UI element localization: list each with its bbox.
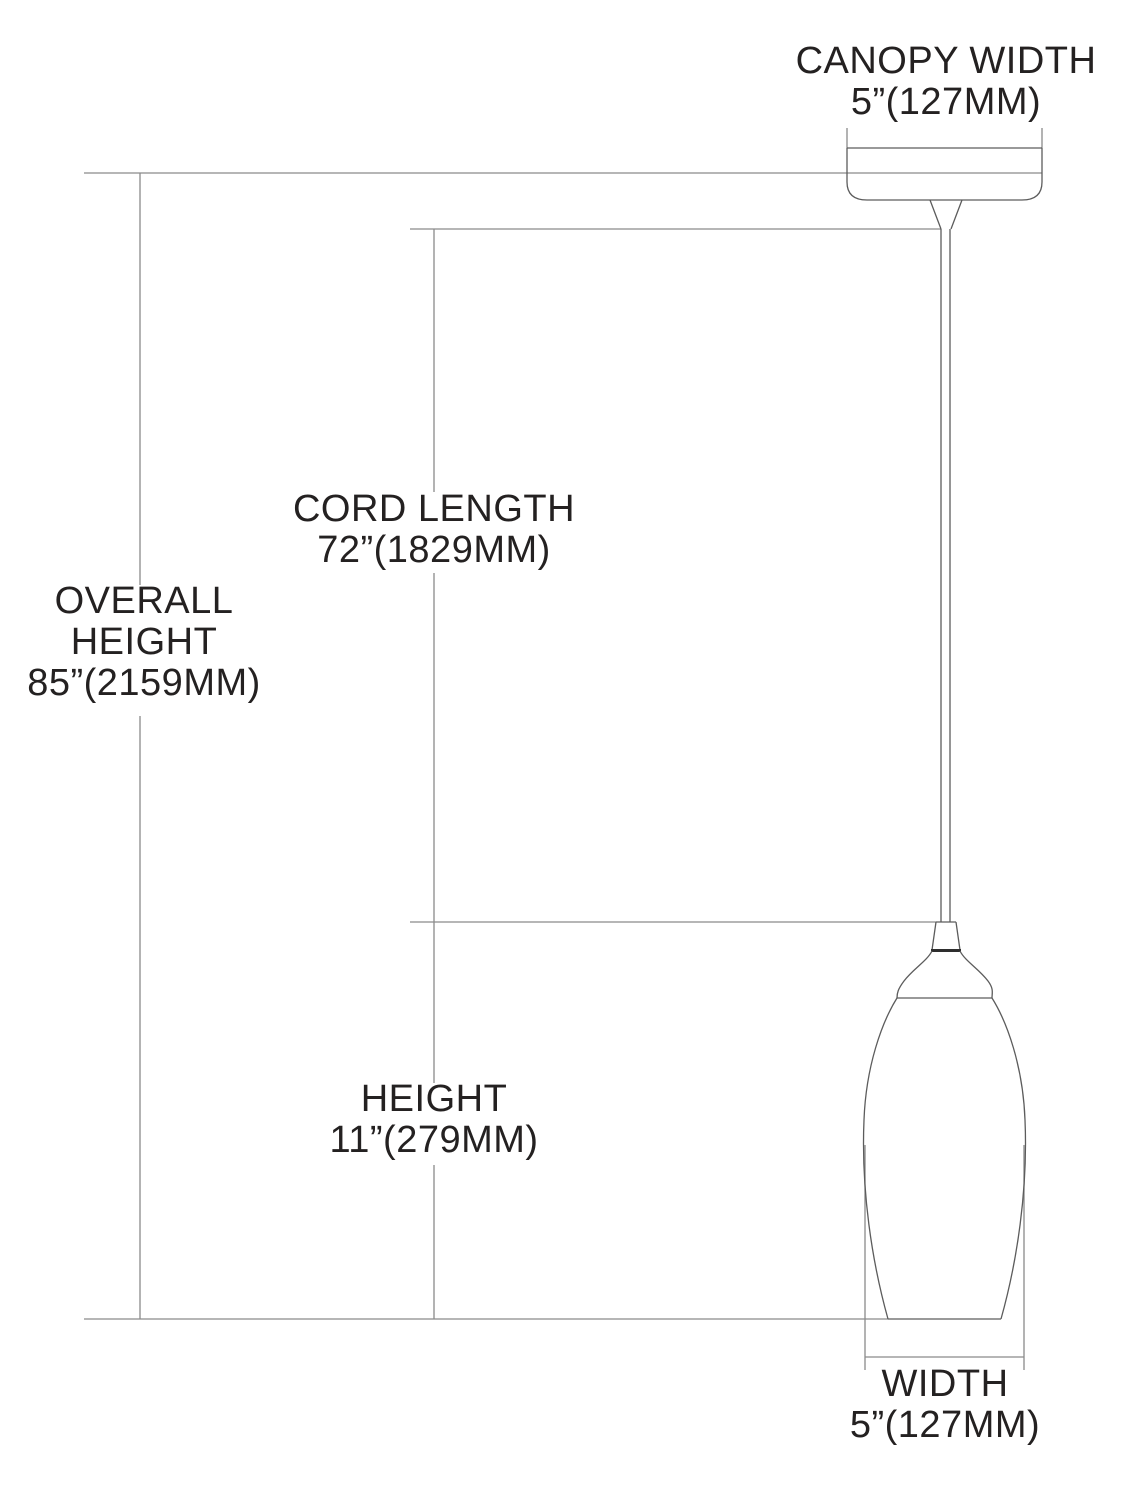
pendant-dimension-diagram: CANOPY WIDTH 5”(127MM) CORD LENGTH 72”(1… bbox=[0, 0, 1124, 1500]
width-value-text: 5”(127MM) bbox=[850, 1405, 1040, 1446]
shade-shoulder-right bbox=[960, 951, 992, 998]
canopy-outline bbox=[847, 148, 1042, 200]
overall-height-value-text: 85”(2159MM) bbox=[19, 663, 269, 704]
height-label-text: HEIGHT bbox=[329, 1079, 538, 1120]
cord-length-label: CORD LENGTH 72”(1829MM) bbox=[293, 489, 575, 571]
cord-length-value-text: 72”(1829MM) bbox=[293, 530, 575, 571]
canopy-width-label: CANOPY WIDTH 5”(127MM) bbox=[796, 41, 1097, 123]
canopy-width-label-text: CANOPY WIDTH bbox=[796, 41, 1097, 82]
cord-lines bbox=[941, 229, 950, 922]
height-label: HEIGHT 11”(279MM) bbox=[329, 1079, 538, 1161]
dimension-lines bbox=[84, 128, 1042, 1370]
socket-outline bbox=[932, 922, 960, 950]
width-label: WIDTH 5”(127MM) bbox=[850, 1364, 1040, 1446]
cord-grip-outline bbox=[930, 200, 962, 229]
shade-shoulder-left bbox=[897, 951, 932, 998]
width-extension-lines bbox=[865, 1145, 1024, 1370]
fixture-drawing bbox=[0, 0, 1124, 1500]
shade-body-left bbox=[864, 998, 897, 1319]
height-value-text: 11”(279MM) bbox=[329, 1120, 538, 1161]
fixture-outline bbox=[847, 148, 1042, 1319]
overall-height-label-text: OVERALL HEIGHT bbox=[19, 581, 269, 663]
width-label-text: WIDTH bbox=[850, 1364, 1040, 1405]
shade-body-right bbox=[992, 998, 1025, 1319]
canopy-width-value-text: 5”(127MM) bbox=[796, 82, 1097, 123]
cord-length-label-text: CORD LENGTH bbox=[293, 489, 575, 530]
overall-height-label: OVERALL HEIGHT 85”(2159MM) bbox=[19, 581, 269, 704]
canopy-width-extension-ticks bbox=[847, 128, 1042, 148]
